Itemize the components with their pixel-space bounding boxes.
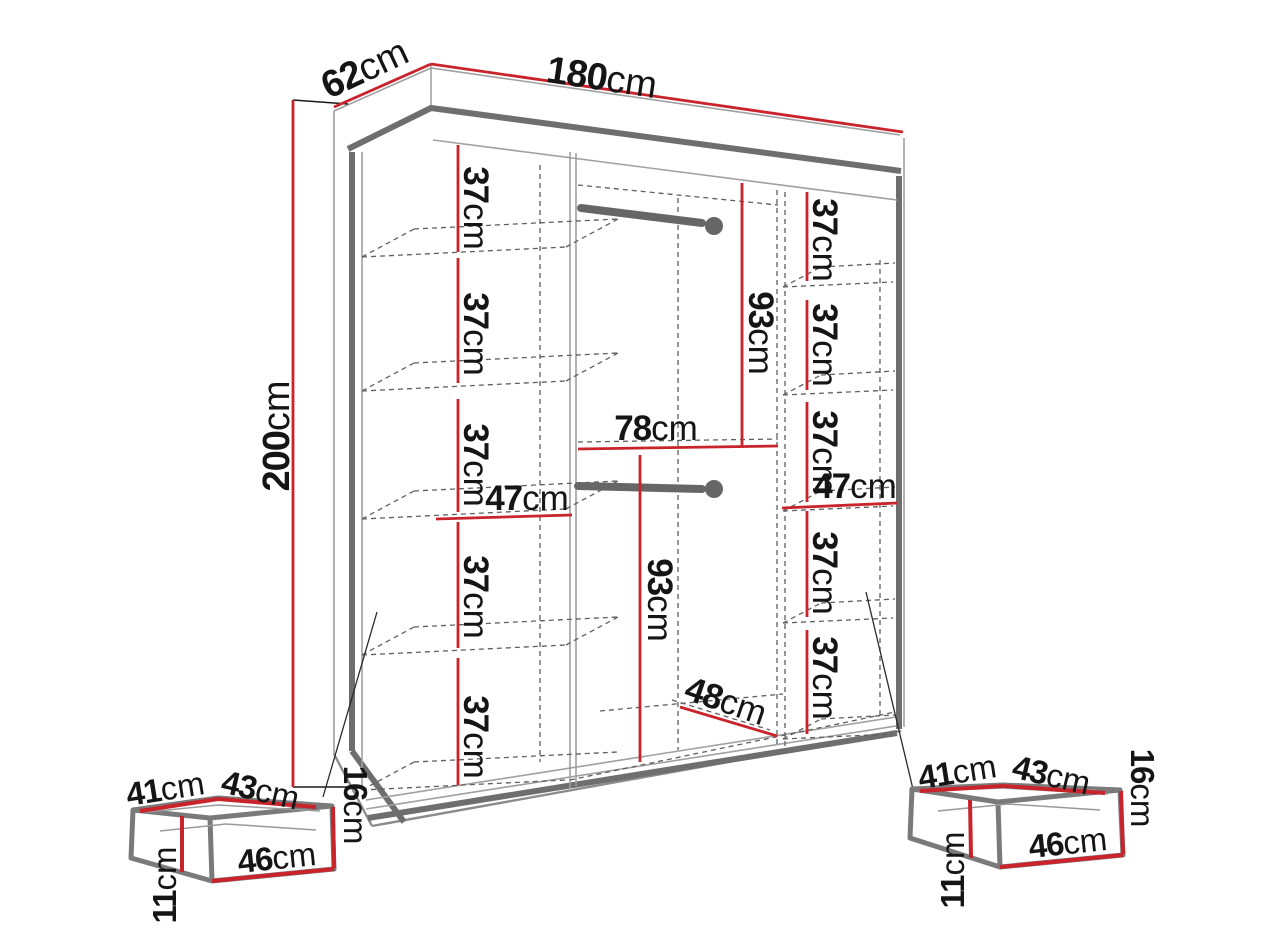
middle-depth-label: 48cm [680,669,772,733]
bottom-hanging-height-label: 93cm [640,558,679,642]
left-shelf-gap-label-2: 37cm [456,292,495,376]
height-label: 200cm [256,380,298,491]
left-shelf-gap-label-1: 37cm [456,166,495,250]
left-drawer-height-label: 16cm [337,766,374,845]
right-drawer-inner-height-label: 11cm [934,832,971,909]
wardrobe-dimension-diagram: 62cm 180cm 200cm 37cm 37cm 37cm 37cm 37c… [0,0,1261,946]
top-hanging-height-label: 93cm [741,291,780,375]
right-shelf-gap-label-2: 37cm [805,303,844,387]
width-label: 180cm [544,49,660,107]
depth-label: 62cm [315,31,415,107]
right-section-width-label: 47cm [813,467,897,506]
diagram-canvas: 62cm 180cm 200cm 37cm 37cm 37cm 37cm 37c… [0,0,1261,946]
left-shelf-gap-label-4: 37cm [456,555,495,639]
left-drawer-inner-height-label: 11cm [146,847,183,924]
hanging-rail-bottom [578,480,723,498]
left-section-width-label: 47cm [485,479,569,518]
right-shelf-gap-label-5: 37cm [805,636,844,720]
right-drawer-height-label: 16cm [1124,749,1161,828]
middle-width-label: 78cm [614,409,698,448]
hanging-rail-top [581,208,723,235]
right-shelf-gap-label-4: 37cm [805,531,844,615]
left-shelf-gap-label-5: 37cm [456,695,495,779]
right-drawer-pointer [866,592,917,806]
right-shelf-gap-label-1: 37cm [805,198,844,282]
